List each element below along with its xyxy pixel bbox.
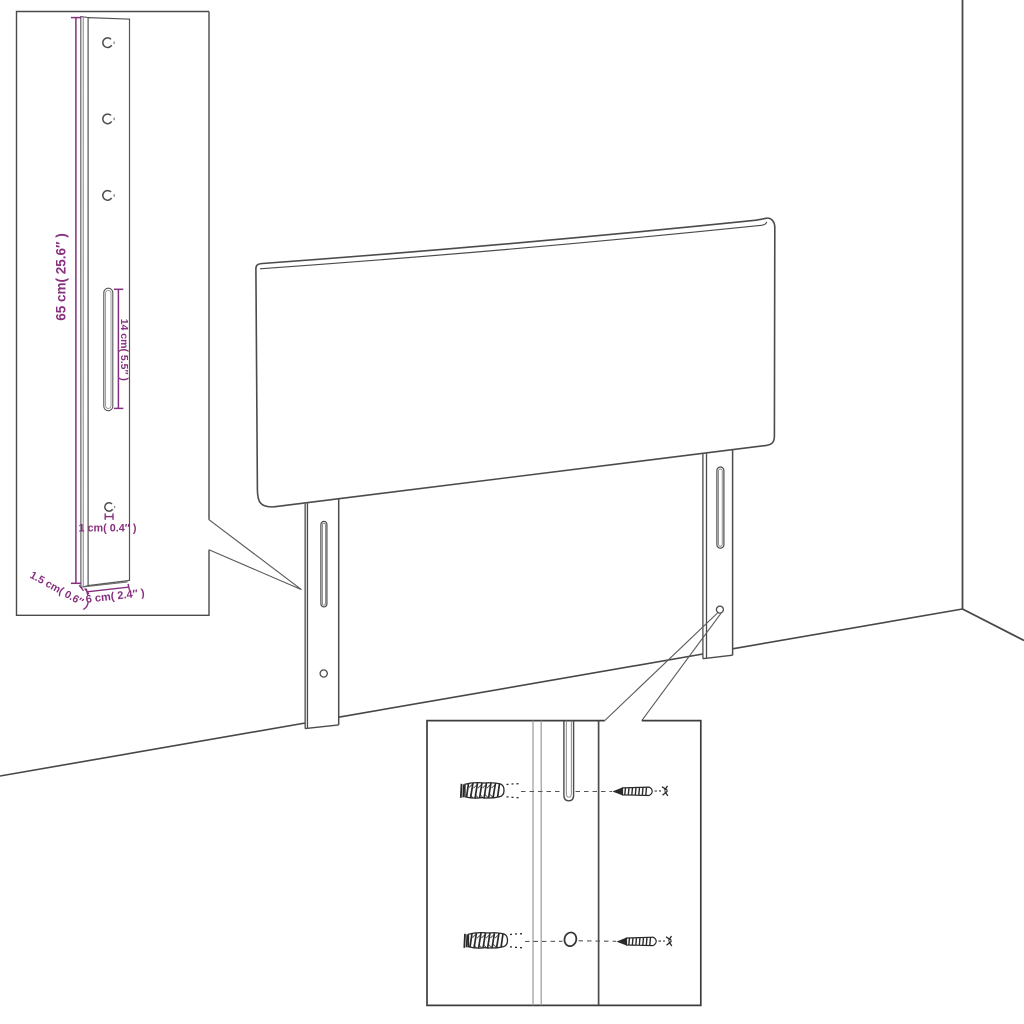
svg-text:1 cm( 0.4″ ): 1 cm( 0.4″ ) [79,523,137,535]
svg-text:65 cm( 25.6″ ): 65 cm( 25.6″ ) [54,233,69,321]
svg-text:14 cm( 5.5″ ): 14 cm( 5.5″ ) [118,319,130,381]
